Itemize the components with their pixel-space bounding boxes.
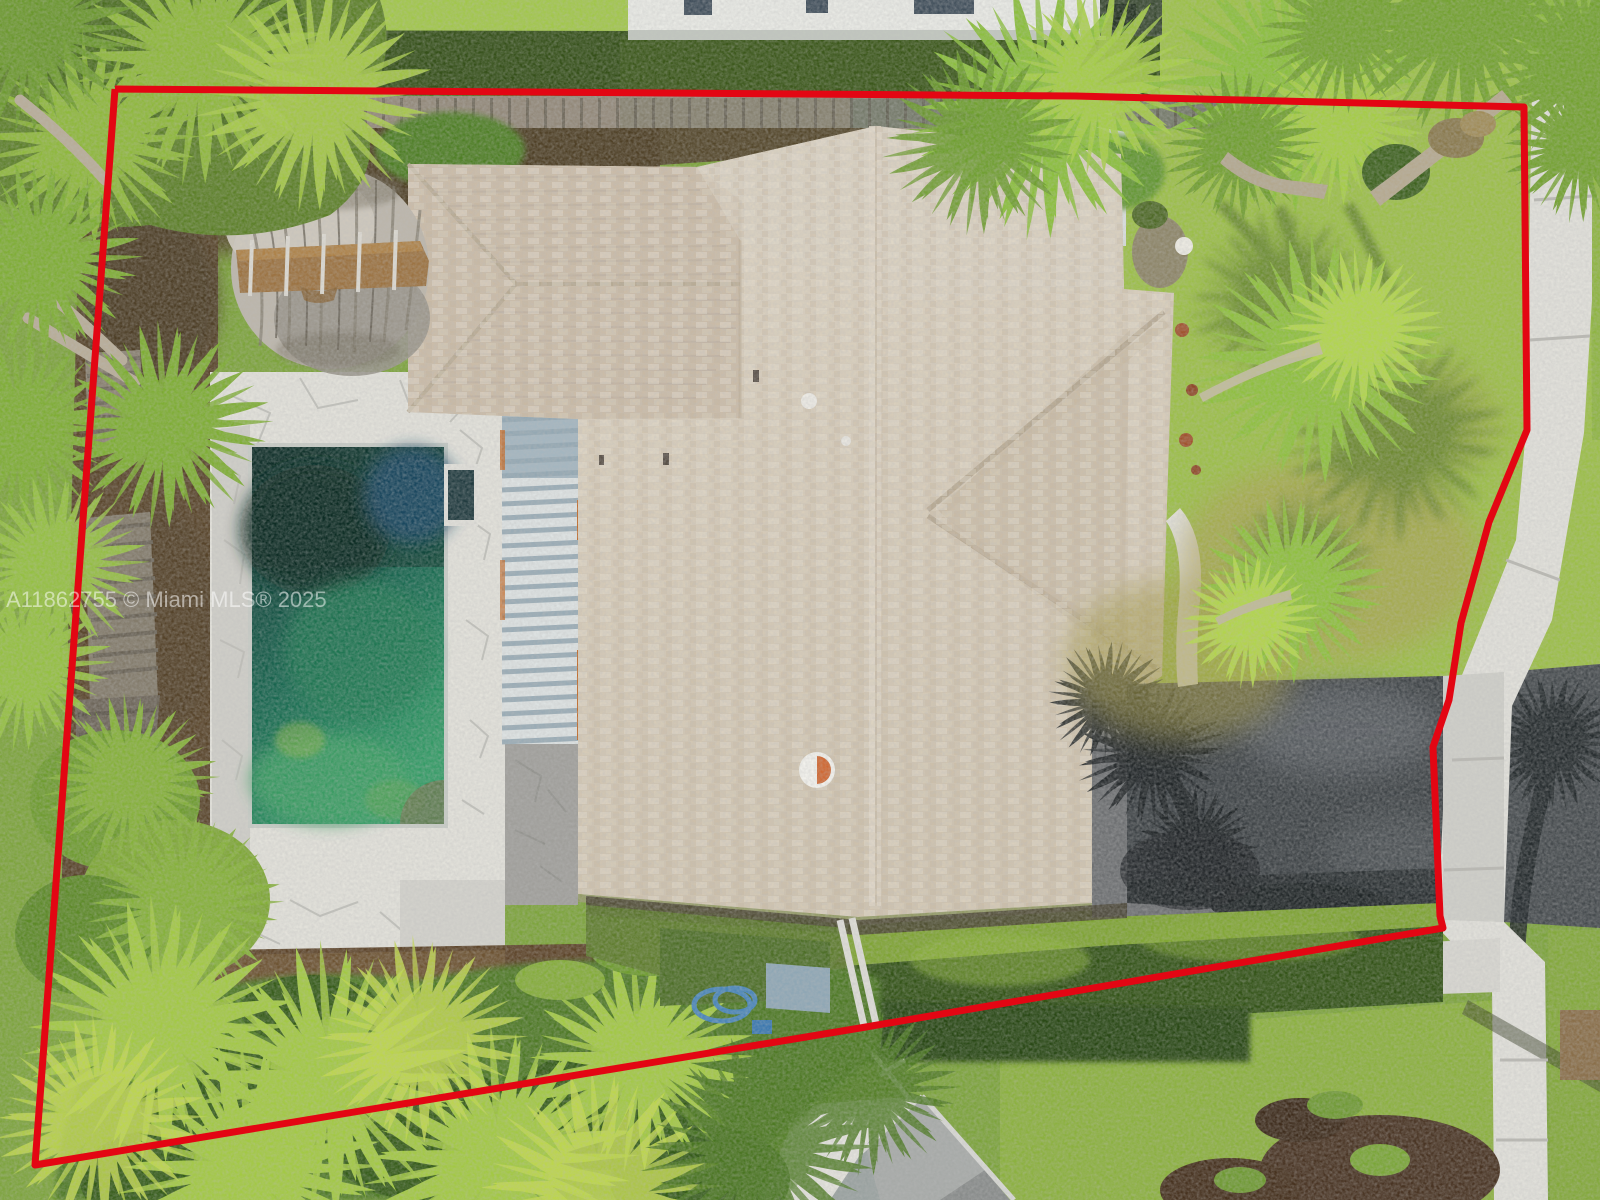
- svg-text:A11862755 © Miami MLS® 2025: A11862755 © Miami MLS® 2025: [6, 587, 327, 612]
